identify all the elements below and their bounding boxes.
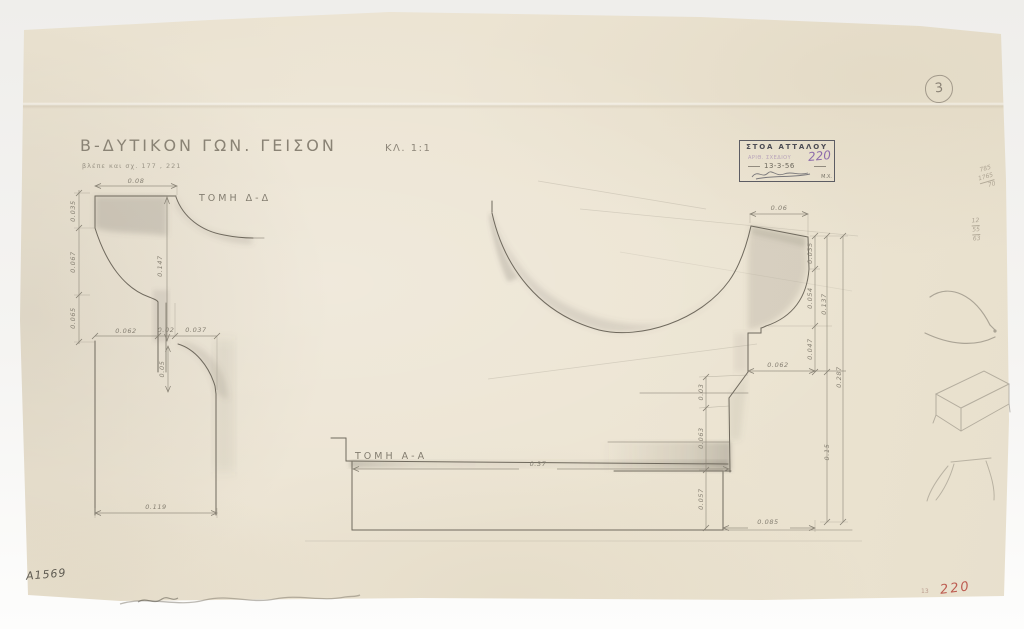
stamp-drawing-number: 220 xyxy=(808,148,832,164)
dim-mp-rsum: 0.137 xyxy=(820,293,828,315)
dim-dd-cove: 0.05 xyxy=(158,361,166,378)
dim-dd-v3: 0.065 xyxy=(69,307,77,329)
stamp-box: ΣΤΟΑ ΑΤΤΑΛΟΥ ΑΡΙΘ. ΣΧΕΔΙΟΥ 220 13-3-56 Μ… xyxy=(739,140,835,182)
margin-sketches xyxy=(120,291,1010,604)
dim-mp-r3: 0.047 xyxy=(806,338,814,360)
dim-mp-lower: 0.15 xyxy=(823,444,831,461)
drawing-scale: ΚΛ. 1:1 xyxy=(385,143,431,154)
dim-mp-l2: 0.063 xyxy=(697,427,705,449)
dim-mp-total: 0.287 xyxy=(835,366,843,388)
dim-dd-b3: 0.037 xyxy=(185,326,207,334)
main-profile-shading xyxy=(350,213,807,471)
dim-mp-r1: 0.035 xyxy=(806,242,814,264)
beak-profile-sketch xyxy=(925,291,997,343)
stamp-number-label: ΑΡΙΘ. ΣΧΕΔΙΟΥ xyxy=(748,155,791,161)
dim-dd-face: 0.147 xyxy=(156,255,164,277)
stamp-initials: Μ.Χ. xyxy=(821,174,832,180)
scanned-drawing-page: 0.08 0.035 0.067 0.065 0.147 0.062 0.02 … xyxy=(0,0,1024,629)
dim-dd-b2: 0.02 xyxy=(158,326,175,334)
dim-mp-r2: 0.054 xyxy=(806,287,814,309)
drawing-title: Β-ΔΥΤΙΚΟΝ ΓΩΝ. ΓΕΙΣΟΝ xyxy=(80,136,337,155)
stamp-signature xyxy=(748,167,818,181)
dim-dd-v2: 0.067 xyxy=(69,251,77,273)
dim-mp-l1: 0.03 xyxy=(697,384,705,401)
calc1-line3: 70 xyxy=(987,180,996,189)
dim-mp-offset: 0.062 xyxy=(767,361,789,369)
dim-dd-top: 0.08 xyxy=(128,177,145,185)
block-sketch xyxy=(933,371,1010,431)
dim-mp-top: 0.06 xyxy=(771,204,788,212)
dimension-labels: 0.08 0.035 0.067 0.065 0.147 0.062 0.02 … xyxy=(69,177,843,526)
dim-aa-width: 0.37 xyxy=(530,460,547,468)
section-dd-label: ΤΟΜΗ Δ-Δ xyxy=(198,193,271,204)
drawing-canvas: 0.08 0.035 0.067 0.065 0.147 0.062 0.02 … xyxy=(0,0,1024,629)
pencil-scribble-dark xyxy=(138,598,178,602)
dim-dd-b1: 0.062 xyxy=(115,327,137,335)
red-number-prefix: 13 xyxy=(921,588,929,595)
dim-dd-v1: 0.035 xyxy=(69,200,77,222)
pencil-calculation-2: 12 55 63 xyxy=(949,217,981,245)
section-dd-linework xyxy=(95,196,264,515)
moulding-sketch xyxy=(927,458,994,501)
pencil-scribble xyxy=(120,595,360,604)
dim-mp-base: 0.085 xyxy=(757,518,779,526)
section-aa-label: ΤΟΜΗ Α-Α xyxy=(354,451,427,462)
calc2-line1: 12 xyxy=(971,217,979,225)
dim-mp-l3: 0.057 xyxy=(697,488,705,510)
calc2-line2: 55 xyxy=(972,225,980,236)
drawing-reference-note: βλέπε και σχ. 177 , 221 xyxy=(82,162,181,170)
calc2-line3: 63 xyxy=(973,235,981,243)
dim-dd-base: 0.119 xyxy=(145,503,167,511)
